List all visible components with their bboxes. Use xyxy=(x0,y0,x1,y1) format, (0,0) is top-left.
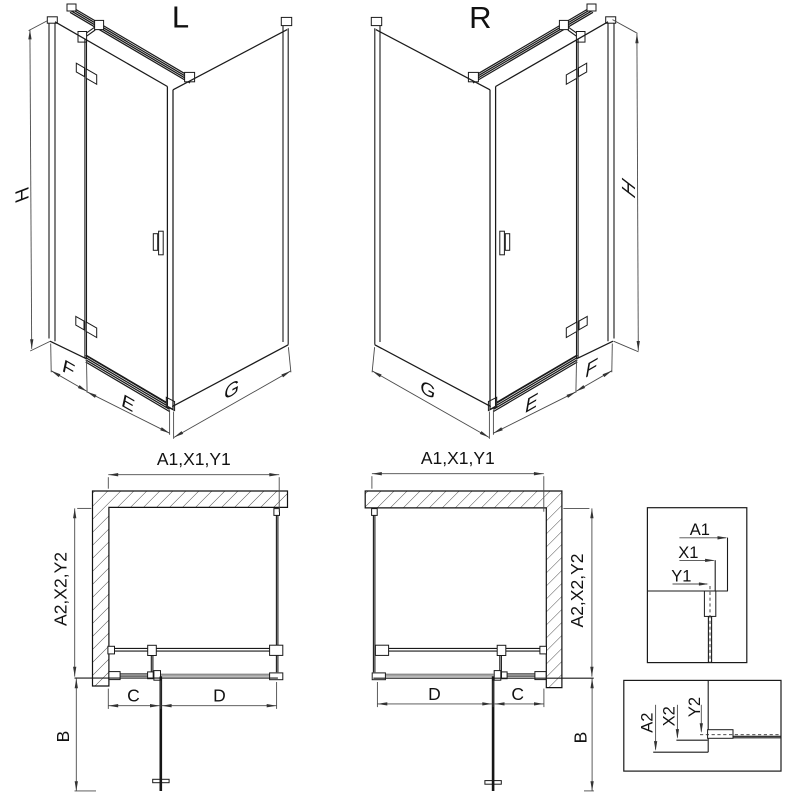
svg-text:C: C xyxy=(127,686,140,706)
svg-text:A2,X2,Y2: A2,X2,Y2 xyxy=(567,554,587,628)
svg-text:Y2: Y2 xyxy=(686,697,704,717)
svg-text:D: D xyxy=(428,684,441,704)
svg-text:C: C xyxy=(511,684,524,704)
svg-text:A2: A2 xyxy=(639,713,657,733)
svg-text:X1: X1 xyxy=(678,544,698,562)
svg-text:A2,X2,Y2: A2,X2,Y2 xyxy=(51,552,71,626)
svg-text:B: B xyxy=(571,732,591,744)
svg-text:A1,X1,Y1: A1,X1,Y1 xyxy=(421,448,495,468)
svg-text:A1,X1,Y1: A1,X1,Y1 xyxy=(157,449,231,469)
svg-text:B: B xyxy=(53,731,73,743)
svg-text:L: L xyxy=(172,0,189,35)
svg-text:D: D xyxy=(213,686,226,706)
svg-text:A1: A1 xyxy=(690,521,710,539)
svg-text:R: R xyxy=(469,0,491,35)
svg-text:Y1: Y1 xyxy=(671,568,691,586)
svg-text:X2: X2 xyxy=(660,706,678,726)
